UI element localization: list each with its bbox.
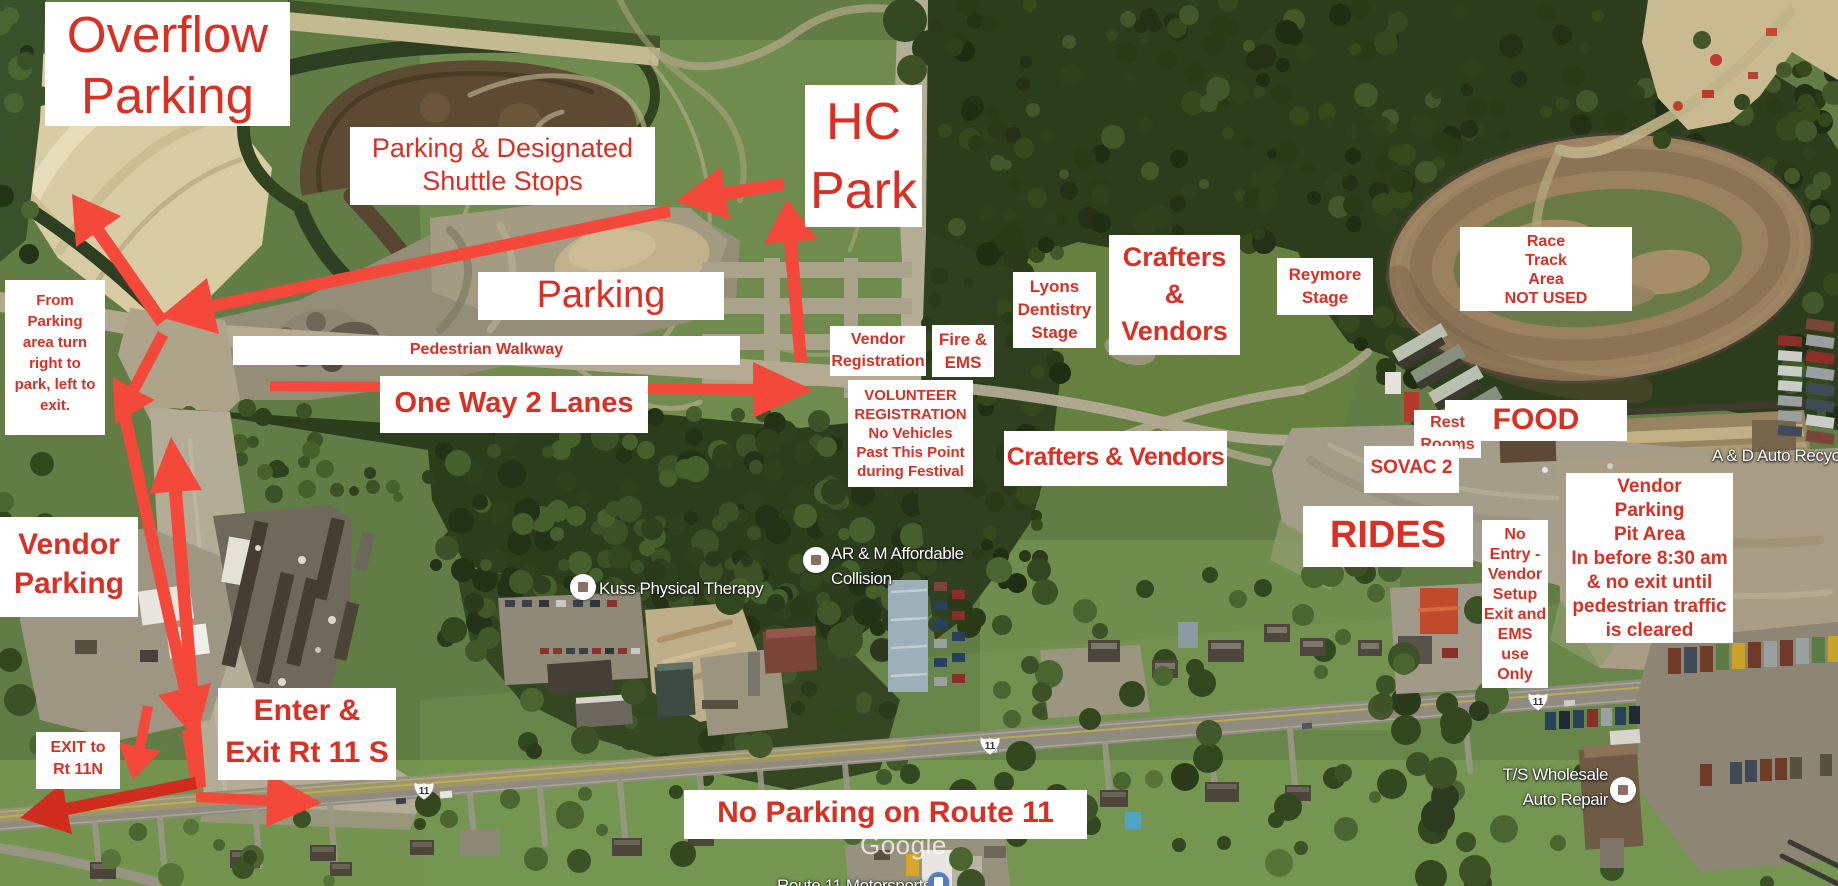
svg-text:11: 11 [1533,697,1544,708]
svg-text:11: 11 [985,741,996,752]
svg-text:11: 11 [419,786,430,797]
